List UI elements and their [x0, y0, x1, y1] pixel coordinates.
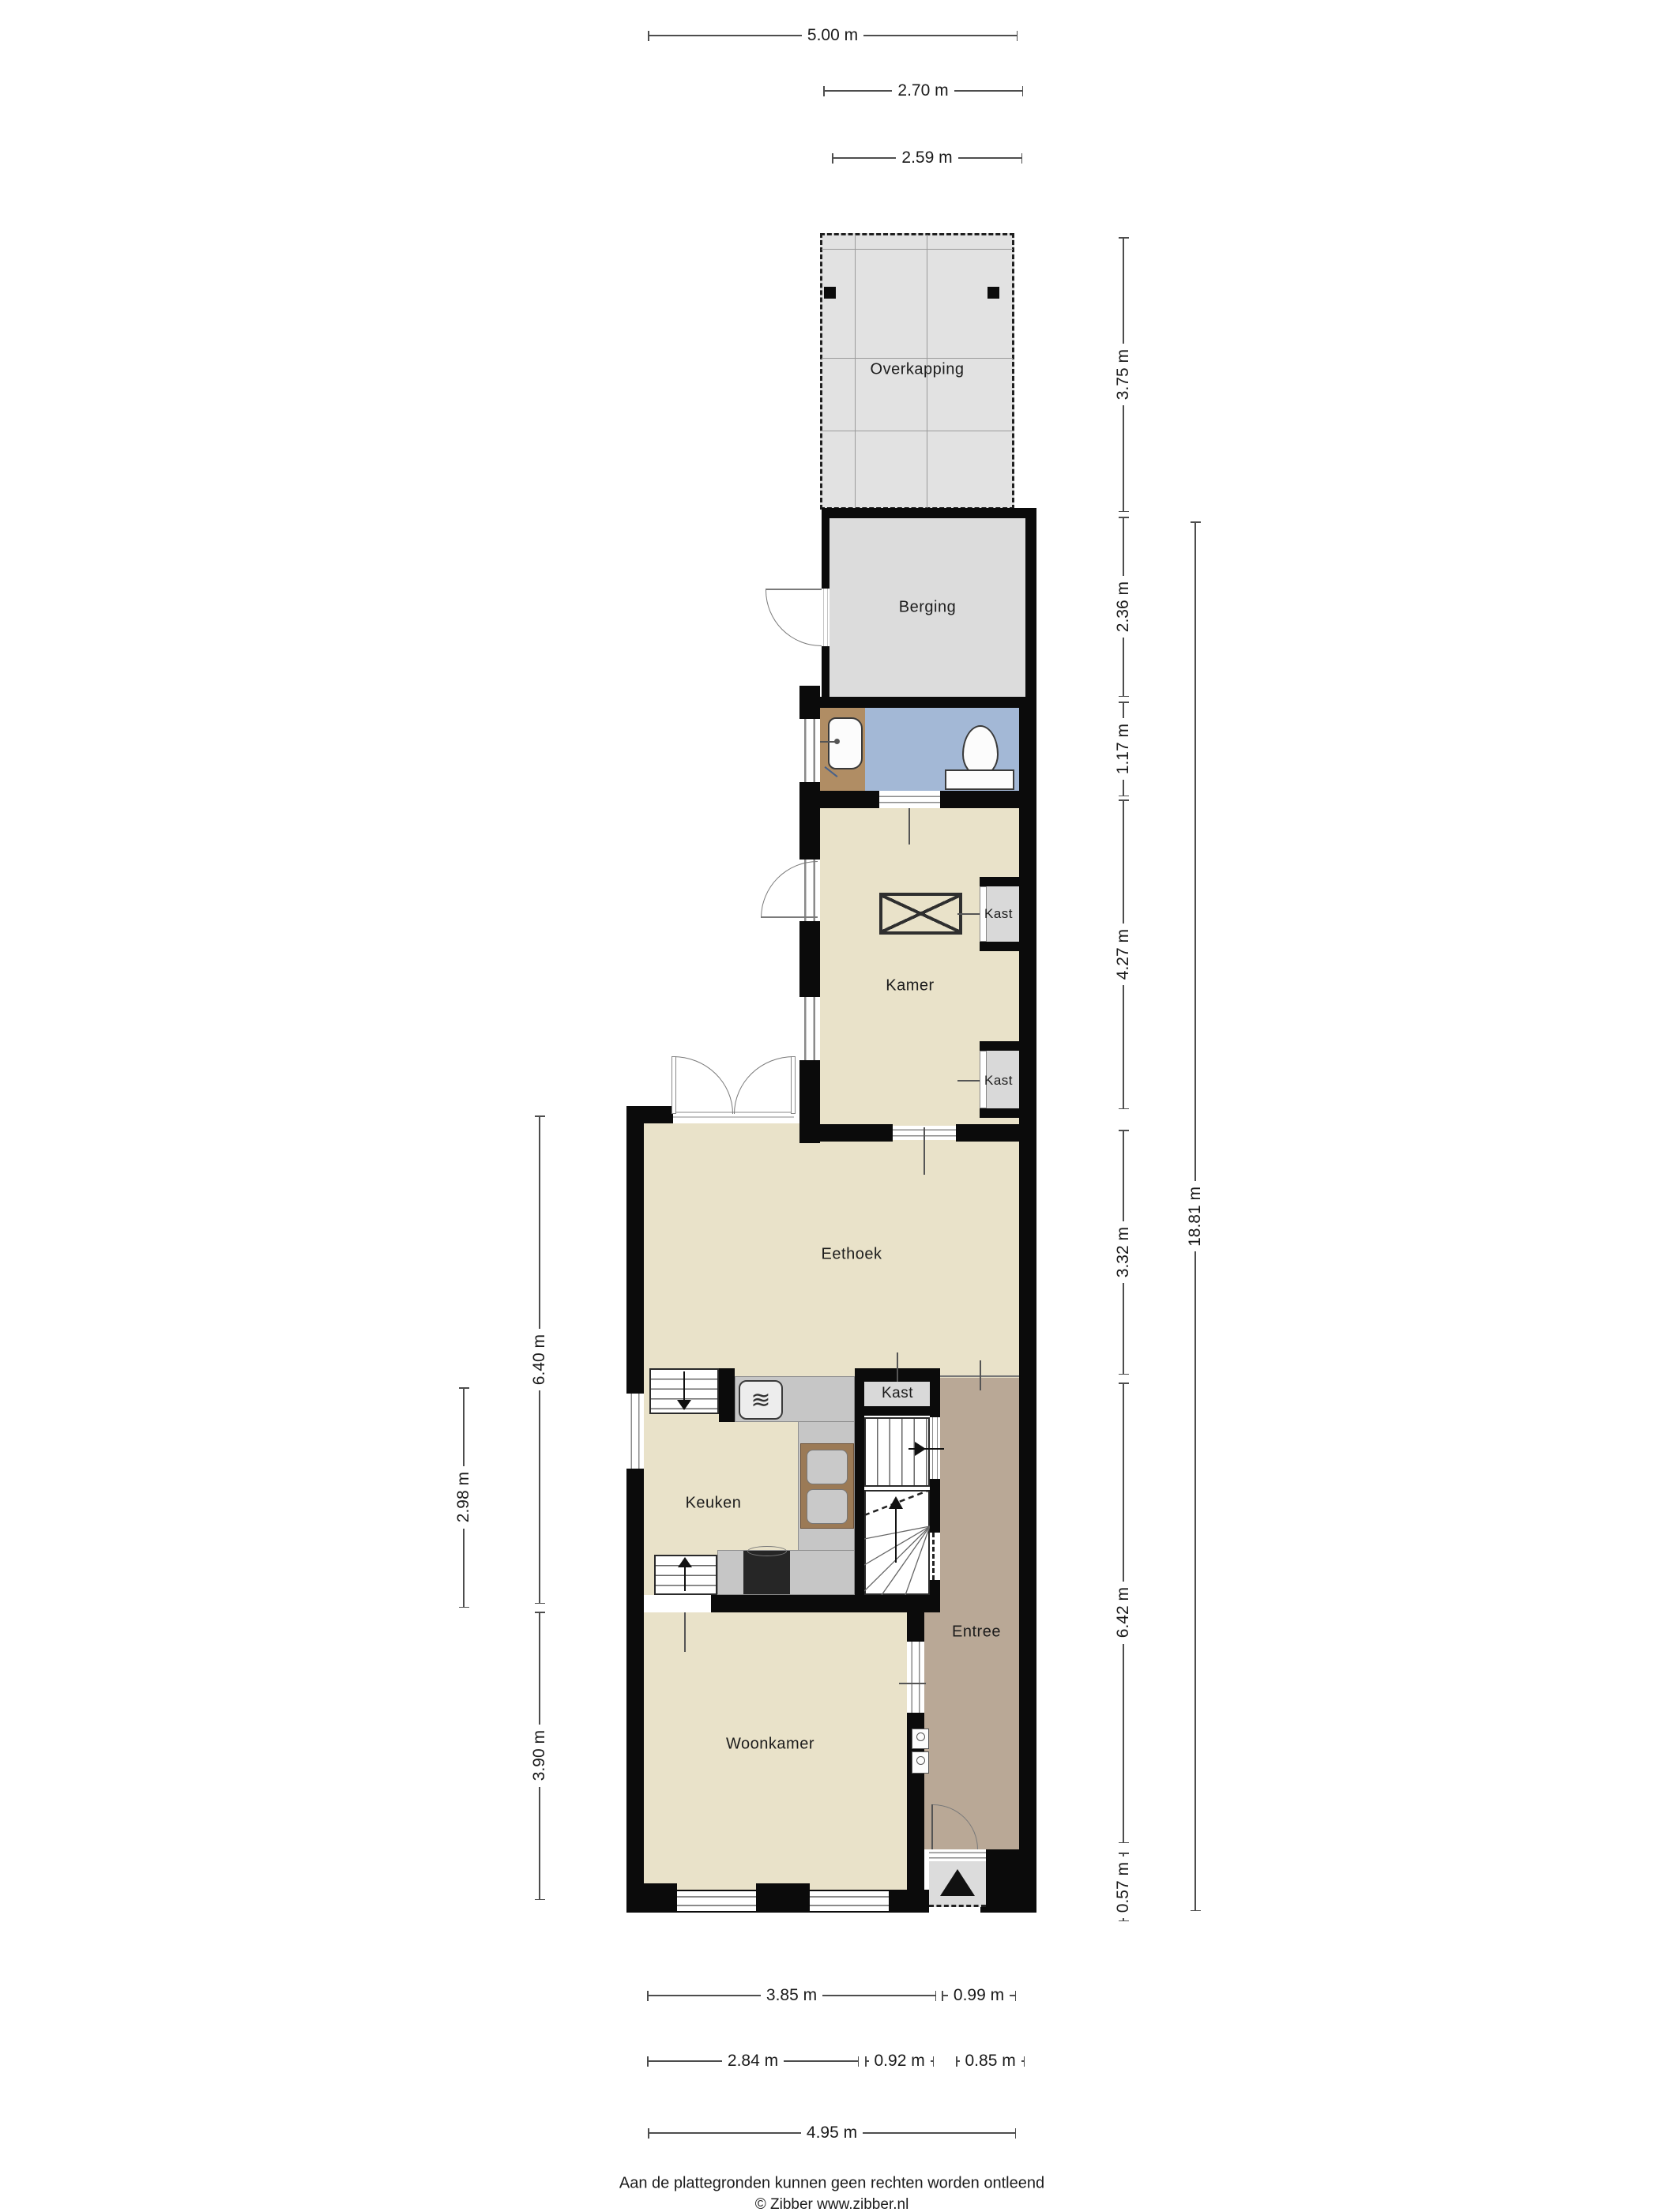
door-tick	[924, 1127, 925, 1175]
bath-sink	[828, 717, 863, 769]
stairs-direction-line	[683, 1371, 685, 1401]
wall	[930, 1580, 940, 1595]
door-tick	[908, 808, 910, 845]
sink-basin	[807, 1489, 848, 1524]
wall	[907, 1612, 924, 1642]
entree-floor-north	[940, 1378, 1019, 1612]
dimension-bottom-5: 0.85 m	[956, 2052, 1018, 2071]
closet-label: Kast	[984, 906, 1013, 922]
window	[810, 1891, 889, 1911]
entrance-arrow-icon	[940, 1869, 975, 1896]
window	[907, 1642, 924, 1713]
wall	[799, 921, 820, 997]
berging-door-opening	[822, 589, 829, 646]
dimension-right-6: 6.42 m	[1113, 1382, 1134, 1843]
dimension-right-3: 1.17 m	[1113, 702, 1134, 796]
dimension-right-5: 3.32 m	[1113, 1130, 1134, 1375]
overkapping-post	[824, 287, 836, 299]
wall	[822, 508, 829, 589]
dimension-right-total: 18.81 m	[1185, 521, 1206, 1911]
wall	[799, 791, 879, 808]
door-swing-arc	[734, 1056, 794, 1114]
dimension-bottom-3: 2.84 m	[647, 2052, 859, 2071]
wall	[626, 1106, 644, 1394]
wall	[626, 1469, 644, 1913]
window-tick	[899, 1683, 926, 1684]
dimension-left-3: 3.90 m	[529, 1612, 550, 1900]
wall	[864, 1406, 940, 1416]
dimension-right-4: 4.27 m	[1113, 799, 1134, 1109]
sink-basin	[807, 1450, 848, 1484]
arrow-right-icon	[915, 1442, 926, 1456]
wall	[626, 1883, 677, 1913]
toilet-cistern	[945, 769, 1014, 790]
stairs-direction-line	[908, 1448, 944, 1450]
kast-leader-line	[957, 1080, 980, 1082]
door-tick	[980, 1360, 981, 1390]
wall	[980, 942, 1019, 951]
overkapping-gridline	[855, 235, 856, 508]
disclaimer-text: Aan de plattegronden kunnen geen rechten…	[619, 2175, 1044, 2193]
wall	[799, 686, 820, 719]
dimension-bottom-6: 4.95 m	[648, 2124, 1016, 2142]
meter-box-dial	[916, 1732, 925, 1741]
winder-stairs-treads	[864, 1490, 930, 1595]
room-label-woonkamer: Woonkamer	[726, 1736, 814, 1754]
room-label-eethoek: Eethoek	[822, 1246, 882, 1264]
stove-hood-line	[747, 1546, 787, 1556]
wall	[930, 1479, 940, 1533]
dimension-right-7: 0.57 m	[1113, 1853, 1134, 1896]
door-leaf	[766, 589, 822, 590]
wall	[756, 1883, 810, 1913]
window	[799, 997, 820, 1060]
wall	[719, 1368, 735, 1422]
wall	[980, 1041, 1019, 1051]
arrow-up-icon	[678, 1557, 692, 1567]
dimension-bottom-2: 0.99 m	[942, 1986, 1016, 2005]
dimension-bottom-1: 3.85 m	[647, 1986, 936, 2005]
door-leaf	[761, 916, 818, 918]
dimension-left-1: 6.40 m	[529, 1115, 550, 1604]
meter-box-icon	[912, 1729, 929, 1749]
understairs-dashed-opening	[932, 1533, 935, 1580]
wall	[930, 1382, 940, 1417]
frontdoor-leaf	[931, 1804, 933, 1849]
overkapping-gridline	[822, 358, 1013, 359]
dimension-top-3: 2.59 m	[832, 149, 1022, 167]
door-tick	[897, 1352, 898, 1382]
dimension-top-2: 2.70 m	[823, 81, 1023, 100]
wall	[980, 877, 1019, 886]
door-leaf	[671, 1056, 676, 1114]
wall	[711, 1595, 940, 1612]
wall	[855, 1368, 864, 1595]
door-tick	[684, 1612, 686, 1652]
room-label-berging: Berging	[899, 599, 956, 617]
meter-box-dial	[916, 1756, 925, 1765]
copyright-text: © Zibber www.zibber.nl	[755, 2196, 909, 2212]
dimension-right-2: 2.36 m	[1113, 517, 1134, 697]
room-label-kamer: Kamer	[886, 977, 934, 995]
dimension-right-1: 3.75 m	[1113, 237, 1134, 512]
wall	[980, 1108, 1019, 1118]
arrow-down-icon	[677, 1400, 691, 1410]
dimension-left-2: 2.98 m	[453, 1387, 474, 1608]
frontdoor-threshold	[929, 1849, 986, 1861]
window	[626, 1394, 644, 1469]
stove-icon	[743, 1551, 790, 1594]
door-leaf	[791, 1056, 796, 1114]
wall	[822, 508, 1025, 518]
window	[677, 1891, 756, 1911]
floorplan-canvas: ≋	[0, 0, 1659, 2212]
wall	[799, 697, 1036, 708]
window	[799, 719, 820, 782]
bathroom-door-opening	[879, 792, 940, 807]
wall	[940, 791, 1036, 808]
wall	[1025, 508, 1036, 708]
dimension-bottom-4: 0.92 m	[865, 2052, 933, 2071]
microwave-icon: ≋	[739, 1380, 783, 1420]
meter-box-icon	[912, 1751, 929, 1774]
stairs-direction-line	[684, 1567, 686, 1591]
kast-leader-line	[957, 913, 980, 915]
overkapping-gridline	[822, 431, 1013, 431]
room-label-keuken: Keuken	[686, 1495, 742, 1513]
door-swing-arc	[766, 590, 822, 646]
overkapping-post	[987, 287, 999, 299]
wall	[822, 646, 829, 697]
bath-faucet-dot	[834, 739, 840, 744]
microwave-glyph: ≋	[750, 1386, 770, 1414]
skylight-x-symbol	[879, 893, 962, 935]
closet-label: Kast	[984, 1073, 1013, 1089]
dimension-top-1: 5.00 m	[648, 26, 1018, 45]
door-swing-arc	[673, 1056, 733, 1114]
overkapping-gridline	[822, 249, 1013, 250]
closet-label: Kast	[882, 1385, 913, 1402]
door-swing-arc	[761, 861, 818, 918]
wall	[799, 1124, 893, 1142]
wall	[980, 1849, 1036, 1913]
room-label-overkapping: Overkapping	[871, 361, 965, 379]
wall	[1019, 708, 1036, 1849]
wall	[956, 1124, 1036, 1142]
room-label-entree: Entree	[952, 1623, 1001, 1642]
